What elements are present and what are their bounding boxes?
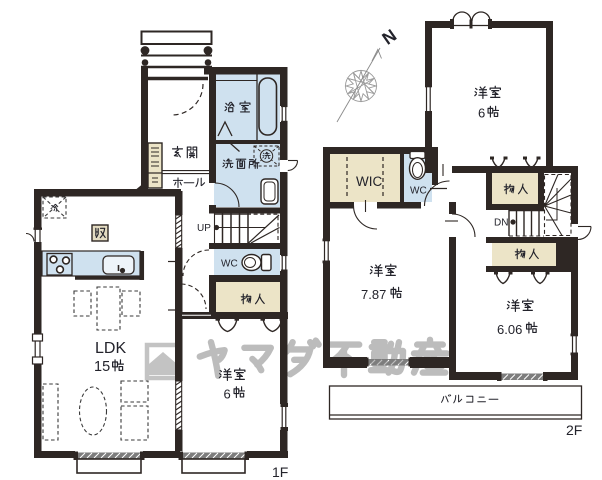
svg-text:7.87: 7.87	[361, 287, 386, 302]
svg-text:DN: DN	[494, 218, 508, 229]
svg-text:15: 15	[94, 359, 110, 375]
svg-text:UP: UP	[197, 223, 211, 234]
svg-text:WC: WC	[221, 259, 238, 270]
svg-text:N: N	[378, 25, 400, 49]
svg-text:6.06: 6.06	[497, 322, 522, 337]
svg-text:6: 6	[224, 387, 231, 402]
svg-text:LDK: LDK	[95, 340, 126, 357]
svg-text:2F: 2F	[566, 422, 582, 438]
svg-text:WC: WC	[410, 186, 427, 197]
svg-text:6: 6	[478, 106, 485, 121]
svg-text:WIC: WIC	[356, 174, 382, 189]
svg-text:1F: 1F	[272, 464, 288, 480]
